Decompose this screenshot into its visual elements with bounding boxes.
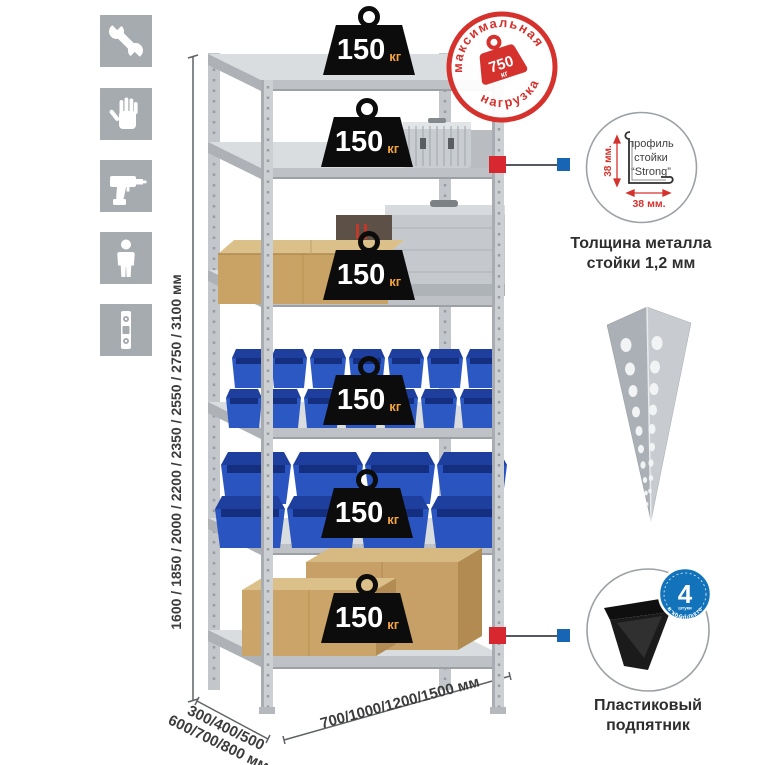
foot-caption: Пластиковый подпятник: [563, 696, 733, 736]
weight-unit: кг: [387, 618, 399, 631]
profile-dim-horizontal: 38 мм.: [632, 198, 665, 210]
foot-caption-line1: Пластиковый: [563, 696, 733, 716]
foot-marker-red: [489, 627, 506, 644]
profile-caption-line2: стойки 1,2 мм: [563, 254, 719, 274]
quantity-badge: 4 штуки в комплекте: [659, 568, 711, 621]
foot-marker-line: [506, 635, 558, 637]
profile-dim-vertical: 38 мм.: [603, 145, 614, 177]
profile-marker-blue: [557, 158, 570, 171]
foot-caption-line2: подпятник: [563, 716, 733, 736]
profile-text-line2: стойки: [634, 152, 668, 164]
weight-value: 150: [335, 128, 383, 157]
shelf-load-weight-2: 150кг: [321, 98, 413, 167]
infographic-canvas: 150кг 150кг 150кг 150кг 150кг 150кг макс…: [0, 0, 765, 765]
shelf-load-weight-6: 150кг: [321, 574, 413, 643]
foot-marker-blue: [557, 629, 570, 642]
profile-text-line1: профиль: [628, 138, 674, 150]
shelf-load-weight-1: 150кг: [323, 6, 415, 75]
shelf-load-weight-4: 150кг: [323, 356, 415, 425]
badge-sub-text: штуки: [678, 606, 692, 611]
weight-unit: кг: [389, 50, 401, 63]
weight-unit: кг: [389, 275, 401, 288]
weight-unit: кг: [389, 400, 401, 413]
weight-knob: [358, 356, 380, 378]
weight-knob: [356, 98, 378, 120]
profile-caption: Толщина металла стойки 1,2 мм: [563, 234, 719, 274]
profile-text-line3: “Strong”: [631, 166, 671, 178]
max-load-stamp: максимальная нагрузка 750 кг: [443, 8, 561, 126]
weight-value: 150: [337, 261, 385, 290]
height-dimension-label: 1600 / 1850 / 2000 / 2200 / 2350 / 2550 …: [168, 274, 184, 629]
profile-marker-line: [506, 164, 558, 166]
profile-marker-red: [489, 156, 506, 173]
weight-knob: [358, 6, 380, 28]
plastic-foot-detail: 4 штуки в комплекте: [584, 566, 712, 694]
weight-knob: [356, 469, 378, 491]
shelf-load-weight-3: 150кг: [323, 231, 415, 300]
weight-value: 150: [335, 604, 383, 633]
badge-value: 4: [678, 579, 693, 609]
weight-value: 150: [337, 386, 385, 415]
weight-knob: [356, 574, 378, 596]
post-profile-detail: 38 мм. 38 мм. профиль стойки “Strong”: [583, 110, 700, 227]
weight-unit: кг: [387, 142, 399, 155]
weight-knob: [358, 231, 380, 253]
corner-post-image: [593, 293, 705, 533]
shelf-load-weight-5: 150кг: [321, 469, 413, 538]
weight-unit: кг: [387, 513, 399, 526]
weight-value: 150: [337, 36, 385, 65]
profile-caption-line1: Толщина металла: [563, 234, 719, 254]
weight-value: 150: [335, 499, 383, 528]
